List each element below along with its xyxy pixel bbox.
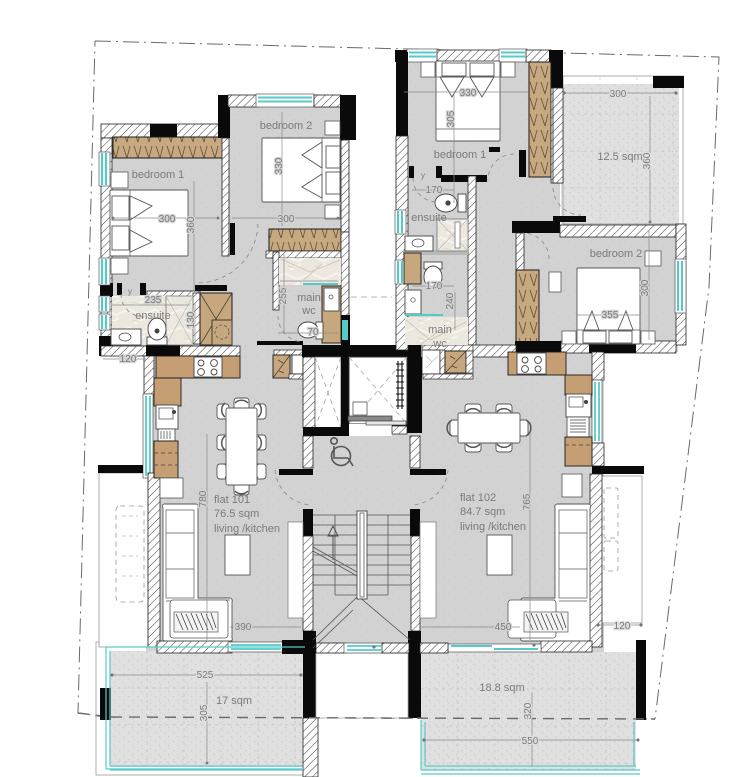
svg-text:300: 300 xyxy=(159,214,176,225)
svg-text:bedroom 1: bedroom 1 xyxy=(132,169,185,181)
svg-text:235: 235 xyxy=(145,295,162,306)
svg-text:bedroom 2: bedroom 2 xyxy=(590,248,643,260)
svg-text:360: 360 xyxy=(642,152,653,169)
svg-text:76.5 sqm: 76.5 sqm xyxy=(214,508,259,520)
svg-text:300: 300 xyxy=(610,89,627,100)
svg-text:305: 305 xyxy=(446,110,457,127)
svg-text:300: 300 xyxy=(640,279,651,296)
svg-text:living /kitchen: living /kitchen xyxy=(460,521,526,533)
svg-text:y: y xyxy=(421,171,425,180)
svg-text:18.8 sqm: 18.8 sqm xyxy=(479,682,524,694)
svg-text:main: main xyxy=(297,292,321,304)
svg-text:390: 390 xyxy=(235,622,252,633)
svg-text:255: 255 xyxy=(278,287,289,304)
svg-text:wc: wc xyxy=(432,338,447,350)
svg-text:330: 330 xyxy=(274,157,285,174)
svg-text:main: main xyxy=(428,324,452,336)
svg-text:12.5 sqm: 12.5 sqm xyxy=(597,151,642,163)
svg-text:170: 170 xyxy=(426,281,443,292)
svg-text:300: 300 xyxy=(278,214,295,225)
svg-text:living /kitchen: living /kitchen xyxy=(214,523,280,535)
svg-text:ensuite: ensuite xyxy=(135,310,170,322)
svg-text:525: 525 xyxy=(197,670,214,681)
svg-text:170: 170 xyxy=(426,185,443,196)
svg-text:17 sqm: 17 sqm xyxy=(216,695,252,707)
svg-text:450: 450 xyxy=(495,622,512,633)
svg-text:550: 550 xyxy=(522,736,539,747)
svg-text:240: 240 xyxy=(445,292,456,309)
svg-text:780: 780 xyxy=(198,490,209,507)
svg-text:84.7 sqm: 84.7 sqm xyxy=(460,506,505,518)
svg-text:355: 355 xyxy=(602,310,619,321)
svg-text:70: 70 xyxy=(307,327,319,338)
svg-text:765: 765 xyxy=(522,493,533,510)
svg-text:360: 360 xyxy=(186,216,197,233)
svg-text:ensuite: ensuite xyxy=(411,212,446,224)
svg-text:bedroom 1: bedroom 1 xyxy=(434,149,487,161)
svg-text:y: y xyxy=(128,287,132,296)
svg-text:330: 330 xyxy=(460,88,477,99)
svg-text:130: 130 xyxy=(186,311,197,328)
svg-text:bedroom 2: bedroom 2 xyxy=(260,120,313,132)
svg-text:320: 320 xyxy=(523,702,534,719)
svg-text:flat 102: flat 102 xyxy=(460,492,496,504)
svg-text:wc: wc xyxy=(301,305,316,317)
svg-text:flat 101: flat 101 xyxy=(214,494,250,506)
svg-text:305: 305 xyxy=(199,704,210,721)
svg-text:120: 120 xyxy=(120,354,137,365)
svg-text:120: 120 xyxy=(614,621,631,632)
